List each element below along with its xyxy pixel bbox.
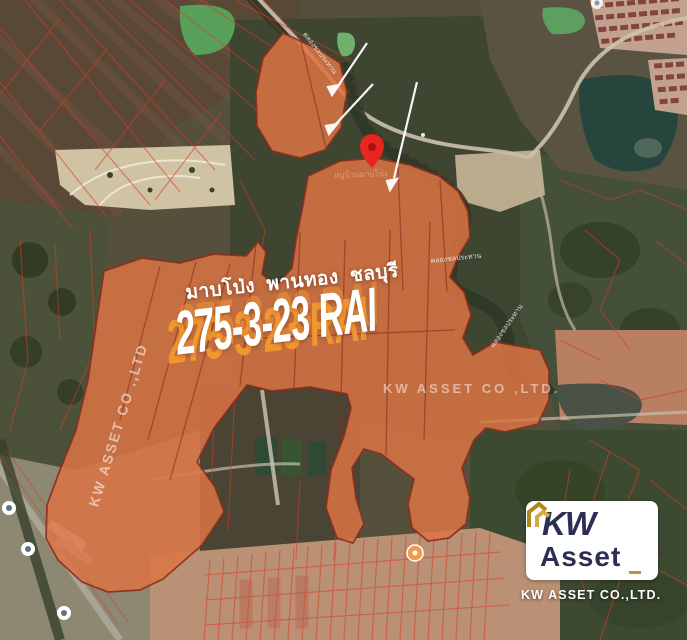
watermark-center: KW ASSET CO ,LTD. — [383, 381, 560, 396]
poi-marker-icon — [407, 545, 423, 561]
poi-marker-icon — [21, 542, 35, 556]
poi-marker-icon — [57, 606, 71, 620]
place-label: หมู่บ้านมาบโป่ง — [334, 167, 388, 182]
house-icon — [526, 501, 554, 528]
kw-asset-logo: KW Asset — [526, 501, 658, 580]
listing-image: คลองชลประทาน คลองชลประทาน คลองชลประทาน ห… — [0, 0, 687, 640]
poi-marker-icon — [2, 501, 16, 515]
logo-gold-tick — [629, 571, 641, 574]
company-name: KW ASSET CO.,LTD. — [521, 588, 661, 602]
logo-asset-text: Asset — [540, 541, 621, 573]
